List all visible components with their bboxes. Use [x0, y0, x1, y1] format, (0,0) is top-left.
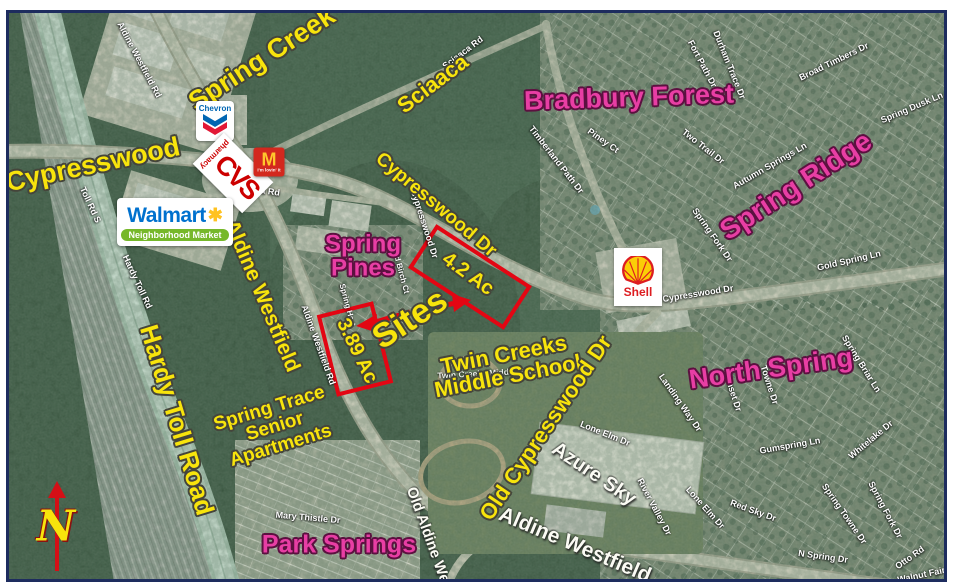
area-label-spring-pines: Spring Pines	[325, 233, 401, 282]
shell-logo: Shell	[614, 248, 662, 306]
walmart-spark-icon: ✱	[208, 205, 223, 226]
aerial-map-canvas: Spring Creek Cypresswood Sciaaca Cypress…	[6, 10, 947, 582]
area-label-park-springs: Park Springs	[262, 532, 416, 558]
map-frame: Spring Creek Cypresswood Sciaaca Cypress…	[6, 10, 947, 582]
shell-pecten-icon	[619, 256, 657, 286]
mcdonalds-logo: M i'm lovin' it	[254, 148, 285, 177]
north-label: N	[37, 502, 75, 551]
golden-arches-icon: M	[262, 151, 277, 167]
chevron-logo: Chevron	[196, 101, 234, 141]
walmart-wordmark: Walmart	[127, 204, 206, 228]
north-arrow-head	[48, 481, 66, 498]
chevron-wordmark: Chevron	[199, 104, 231, 113]
walmart-logo: Walmart ✱ Neighborhood Market	[117, 198, 233, 246]
walmart-neighborhood-market-badge: Neighborhood Market	[121, 229, 228, 241]
mcdonalds-tagline: i'm lovin' it	[257, 168, 280, 173]
shell-wordmark: Shell	[624, 286, 653, 298]
